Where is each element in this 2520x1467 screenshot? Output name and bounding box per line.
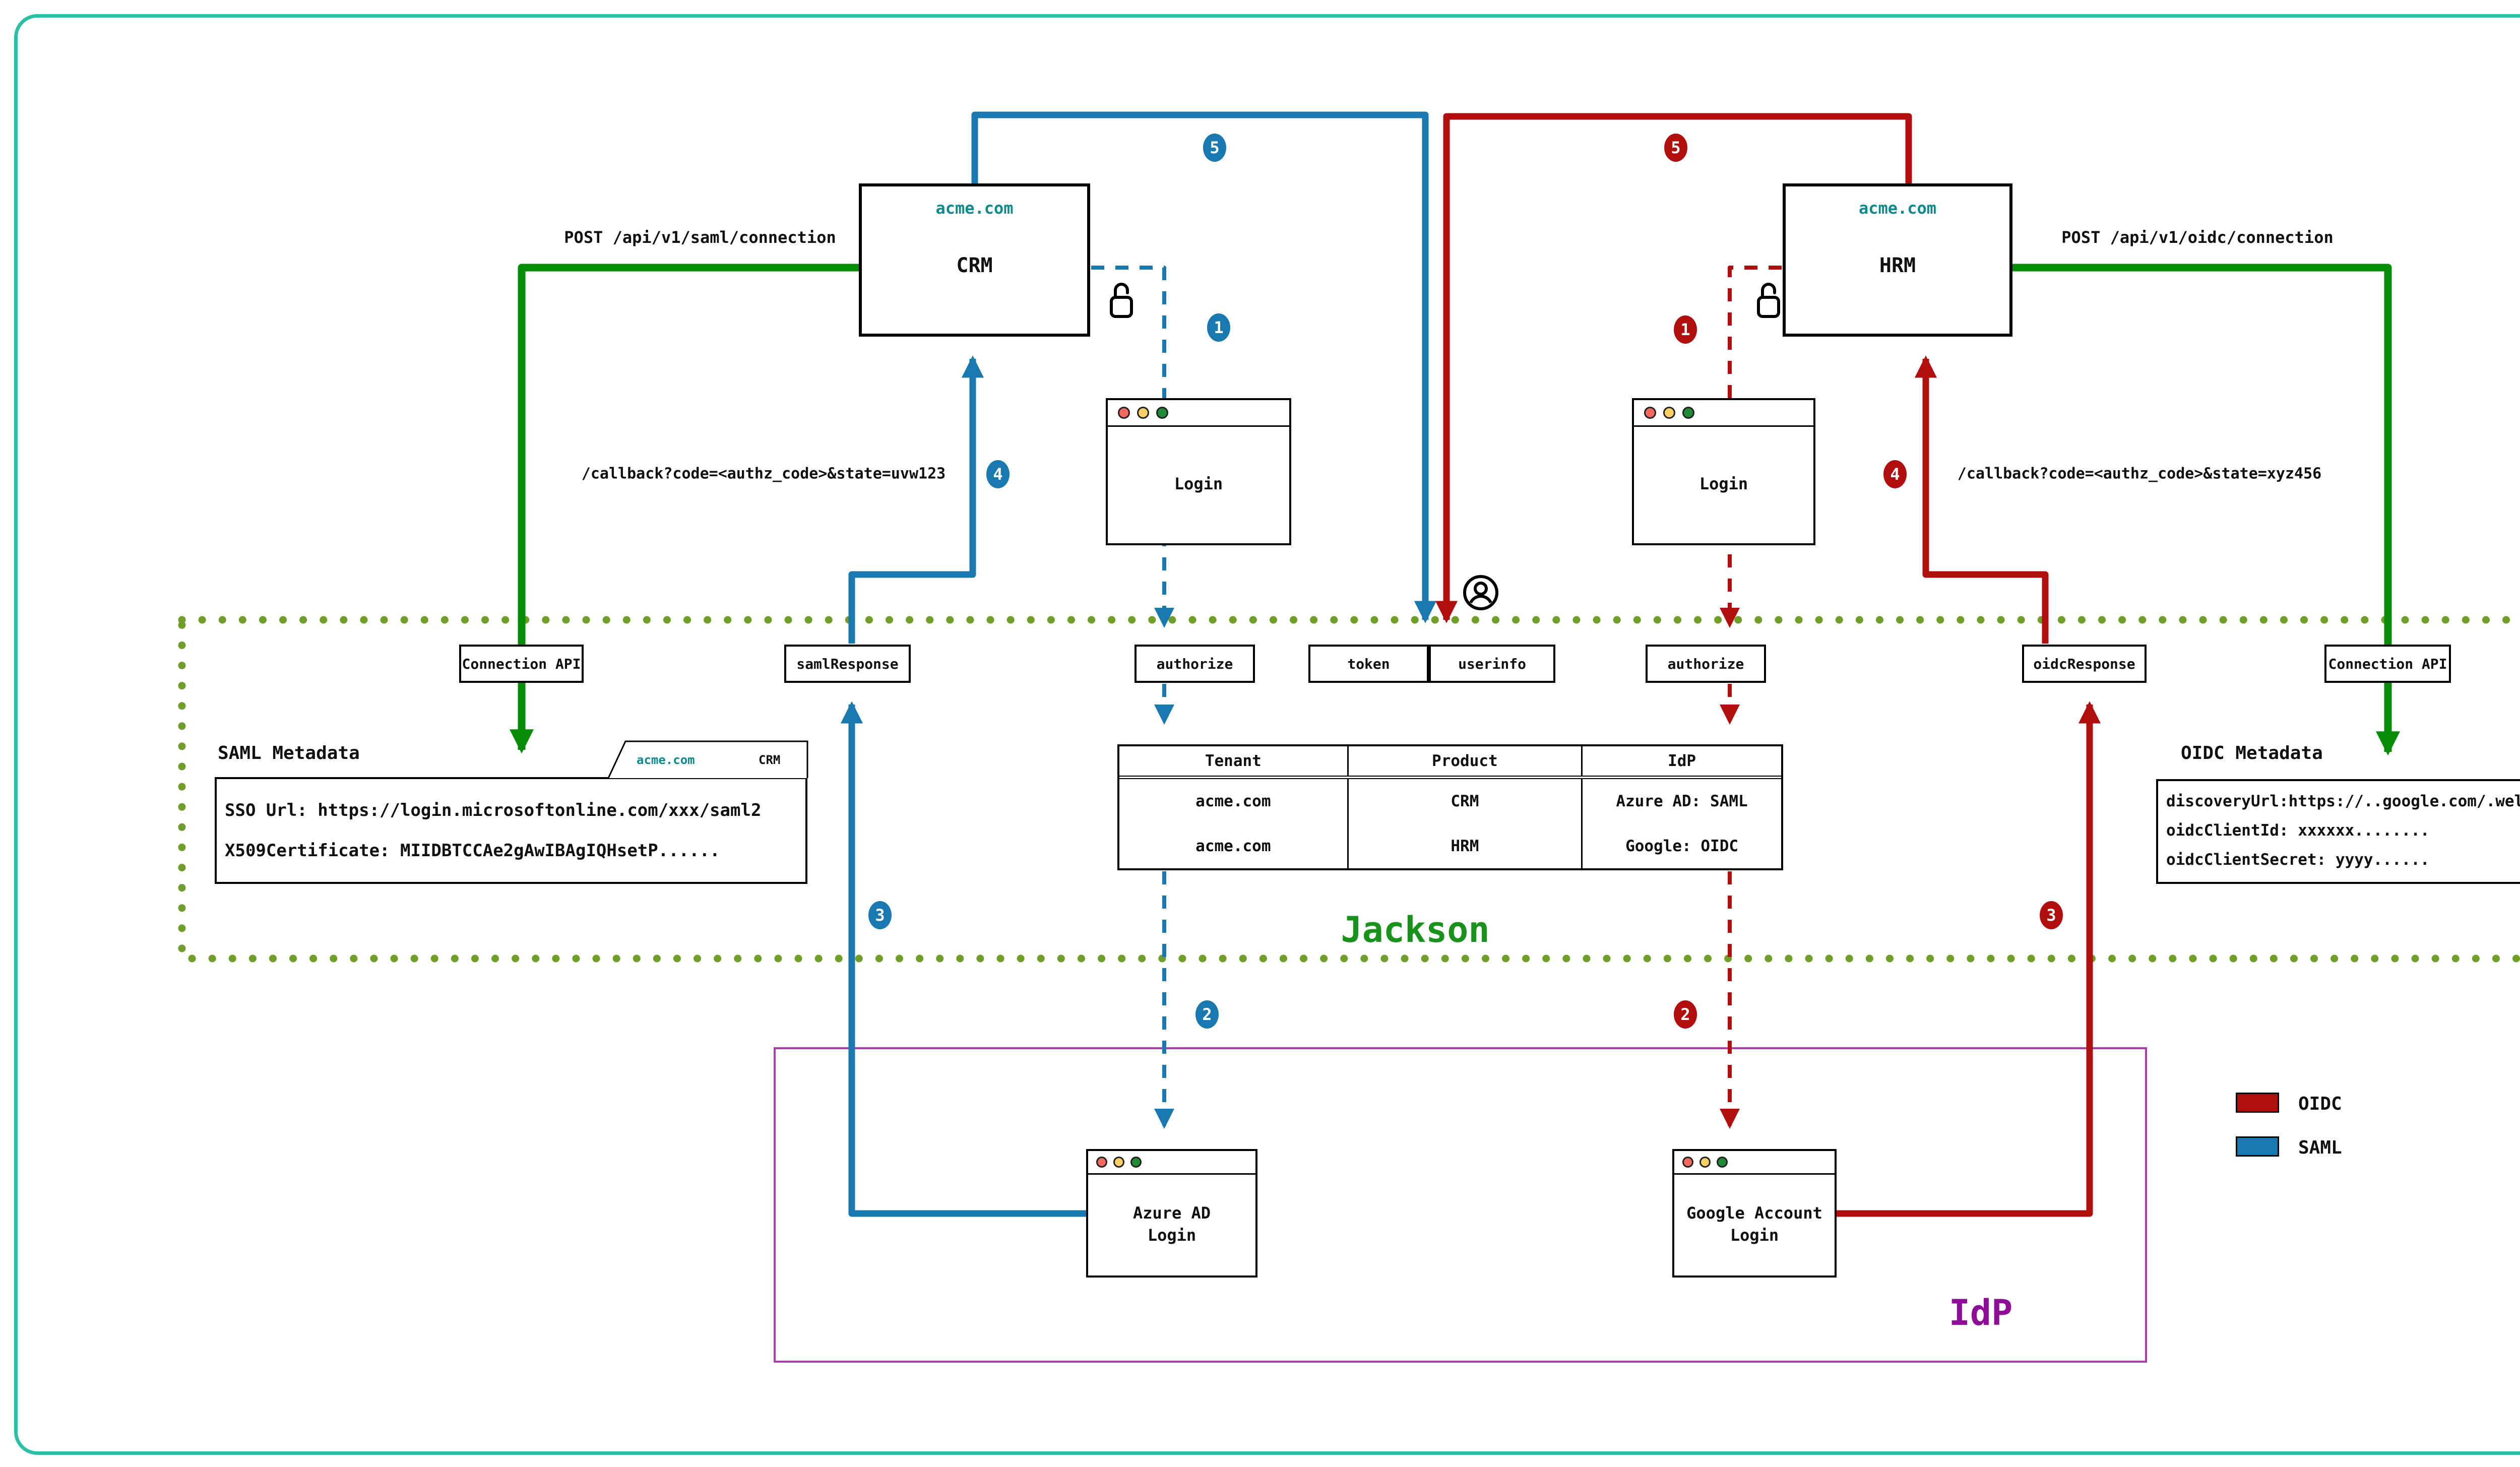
saml-step2-badge: 2 <box>1195 1000 1219 1029</box>
connection-api-right-box: Connection API <box>2324 645 2451 683</box>
idp-title: IdP <box>1949 1292 2012 1333</box>
saml-metadata-title: SAML Metadata <box>218 743 360 763</box>
userinfo-box: userinfo <box>1429 645 1555 683</box>
saml-tab-domain: acme.com <box>637 753 695 767</box>
flow-lines-layer <box>0 0 2520 1467</box>
azure-window-titlebar <box>1088 1151 1255 1175</box>
oidc-login-label: Login <box>1699 473 1748 495</box>
saml-login-label: Login <box>1174 473 1223 495</box>
token-box: token <box>1308 645 1429 683</box>
row2-idp: Google: OIDC <box>1583 824 1781 869</box>
window-maximize-icon <box>1156 407 1168 419</box>
crm-app-box: acme.com CRM <box>859 183 1090 337</box>
oidc-response-box: oidcResponse <box>2022 645 2147 683</box>
oidc-metadata-title: OIDC Metadata <box>2181 743 2323 763</box>
table-header-row: Tenant Product IdP <box>1119 746 1781 779</box>
saml-step4-badge: 4 <box>986 460 1010 488</box>
saml-step1-badge: 1 <box>1207 313 1230 342</box>
legend-oidc-label: OIDC <box>2298 1094 2342 1114</box>
authorize-saml-box: authorize <box>1135 645 1255 683</box>
window-minimize-icon <box>1113 1157 1124 1168</box>
azure-login-line1: Azure AD <box>1133 1202 1211 1224</box>
oidc-step1-badge: 1 <box>1674 315 1697 344</box>
crm-domain-label: acme.com <box>862 199 1087 218</box>
google-window-titlebar <box>1674 1151 1835 1175</box>
azure-ad-login-window: Azure AD Login <box>1086 1149 1257 1278</box>
google-login-window: Google Account Login <box>1672 1149 1837 1278</box>
row2-product: HRM <box>1347 824 1583 869</box>
oidc-login-window: Login <box>1632 398 1815 545</box>
window-close-icon <box>1118 407 1130 419</box>
hrm-lock-icon <box>1754 280 1783 322</box>
oidc-step3-badge: 3 <box>2040 901 2063 929</box>
table-row: acme.com HRM Google: OIDC <box>1119 824 1781 869</box>
window-minimize-icon <box>1663 407 1675 419</box>
saml-login-titlebar <box>1108 400 1289 427</box>
window-minimize-icon <box>1699 1157 1711 1168</box>
oidc-login-titlebar <box>1634 400 1813 427</box>
post-saml-connection-label: POST /api/v1/saml/connection <box>564 228 836 247</box>
legend-oidc-swatch <box>2236 1093 2279 1113</box>
row1-tenant: acme.com <box>1119 779 1347 824</box>
saml-sso-url: SSO Url: https://login.microsoftonline.c… <box>225 800 761 820</box>
window-maximize-icon <box>1130 1157 1142 1168</box>
saml-response-box: samlResponse <box>784 645 911 683</box>
oidc-step4-badge: 4 <box>1883 460 1907 488</box>
header-product: Product <box>1347 746 1583 776</box>
saml-step3-response-line <box>852 705 1087 1214</box>
jackson-title: Jackson <box>1341 909 1489 950</box>
authorize-oidc-box: authorize <box>1646 645 1766 683</box>
header-idp: IdP <box>1583 746 1781 776</box>
legend-saml-swatch <box>2236 1136 2279 1157</box>
google-login-line1: Google Account <box>1686 1202 1822 1224</box>
oidc-client-id: oidcClientId: xxxxxx........ <box>2166 821 2430 840</box>
row1-product: CRM <box>1347 779 1583 824</box>
window-maximize-icon <box>1717 1157 1728 1168</box>
row2-tenant: acme.com <box>1119 824 1347 869</box>
window-minimize-icon <box>1137 407 1149 419</box>
saml-step4-callback-line <box>852 359 973 644</box>
window-close-icon <box>1682 1157 1693 1168</box>
crm-name-label: CRM <box>862 254 1087 277</box>
window-maximize-icon <box>1682 407 1694 419</box>
hrm-name-label: HRM <box>1786 254 2009 277</box>
hrm-app-box: acme.com HRM <box>1783 183 2012 337</box>
idp-boundary <box>775 1048 2146 1362</box>
oidc-callback-url-label: /callback?code=<authz_code>&state=xyz456 <box>1958 465 2321 483</box>
window-close-icon <box>1096 1157 1107 1168</box>
saml-metadata-tab: acme.com CRM <box>607 740 809 779</box>
table-row: acme.com CRM Azure AD: SAML <box>1119 779 1781 824</box>
window-close-icon <box>1644 407 1656 419</box>
oidc-discovery-url: discoveryUrl:https://..google.com/.well-… <box>2166 792 2520 810</box>
saml-step5-badge: 5 <box>1203 134 1226 162</box>
connection-api-left-box: Connection API <box>459 645 584 683</box>
legend-saml-label: SAML <box>2298 1137 2342 1158</box>
saml-tab-product: CRM <box>759 753 780 767</box>
post-oidc-connection-label: POST /api/v1/oidc/connection <box>2061 228 2333 247</box>
user-icon <box>1463 575 1499 613</box>
oidc-step2-badge: 2 <box>1674 1000 1697 1029</box>
oidc-step5-badge: 5 <box>1664 134 1687 162</box>
oidc-metadata-box: discoveryUrl:https://..google.com/.well-… <box>2156 779 2520 884</box>
oidc-step4-callback-line <box>1926 359 2045 644</box>
connections-table: Tenant Product IdP acme.com CRM Azure AD… <box>1117 744 1783 870</box>
google-login-line2: Login <box>1730 1225 1779 1246</box>
saml-x509-certificate: X509Certificate: MIIDBTCCAe2gAwIBAgIQHse… <box>225 841 720 861</box>
oidc-client-secret: oidcClientSecret: yyyy...... <box>2166 851 2430 869</box>
saml-callback-url-label: /callback?code=<authz_code>&state=uvw123 <box>582 465 946 483</box>
header-tenant: Tenant <box>1119 746 1347 776</box>
saml-login-window: Login <box>1106 398 1291 545</box>
azure-login-line2: Login <box>1148 1225 1196 1246</box>
saml-step3-badge: 3 <box>868 901 892 929</box>
saml-metadata-box: SSO Url: https://login.microsoftonline.c… <box>215 777 807 884</box>
row1-idp: Azure AD: SAML <box>1583 779 1781 824</box>
hrm-domain-label: acme.com <box>1786 199 2009 218</box>
crm-lock-icon <box>1107 280 1136 322</box>
diagram-canvas: acme.com CRM acme.com HRM POST /api/v1/s… <box>0 0 2520 1467</box>
